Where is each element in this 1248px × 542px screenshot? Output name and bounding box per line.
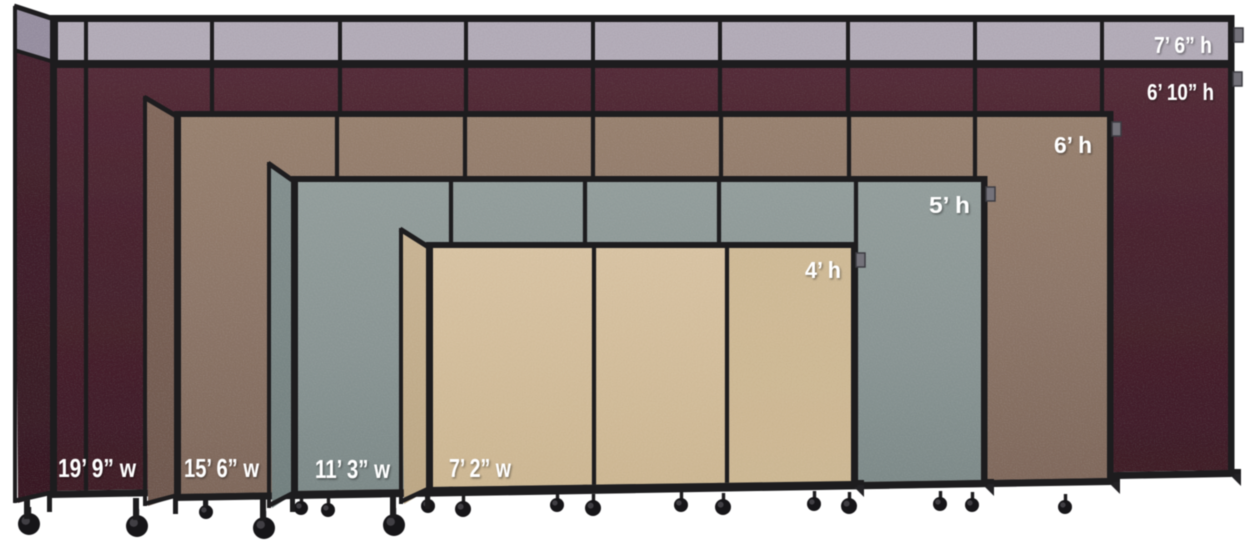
svg-text:6’ h: 6’ h bbox=[1054, 132, 1092, 158]
svg-text:7’ 2” w: 7’ 2” w bbox=[449, 453, 512, 483]
svg-text:15’ 6” w: 15’ 6” w bbox=[184, 453, 260, 483]
svg-text:5’ h: 5’ h bbox=[929, 192, 970, 218]
svg-text:19’ 9” w: 19’ 9” w bbox=[58, 453, 137, 483]
svg-text:11’ 3” w: 11’ 3” w bbox=[315, 454, 391, 484]
svg-text:6’ 10” h: 6’ 10” h bbox=[1147, 79, 1214, 105]
svg-text:7’ 6” h: 7’ 6” h bbox=[1154, 32, 1212, 58]
svg-text:4’ h: 4’ h bbox=[805, 257, 841, 283]
